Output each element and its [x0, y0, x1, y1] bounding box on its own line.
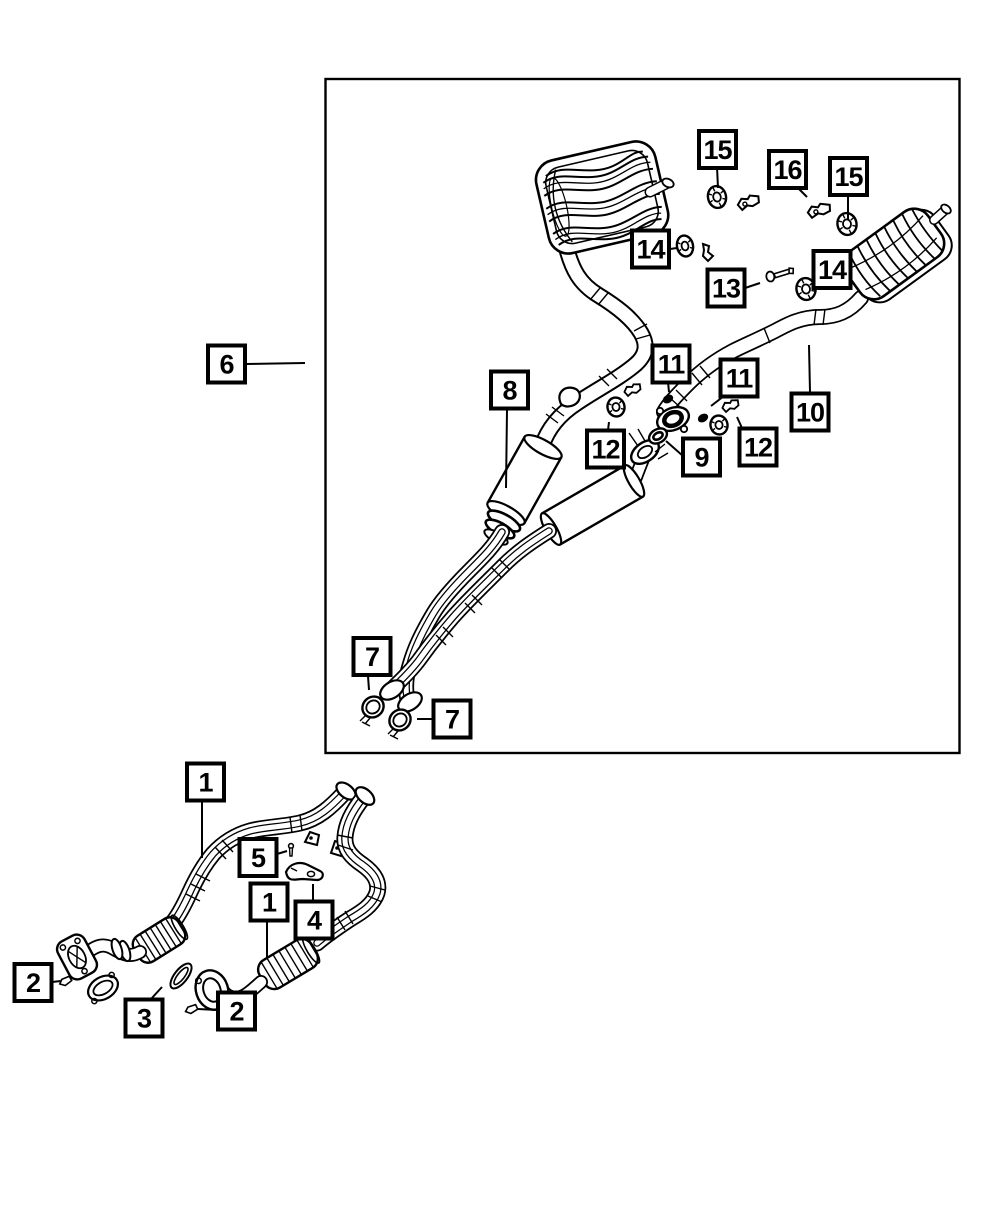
svg-text:9: 9 [694, 443, 709, 473]
svg-text:6: 6 [219, 350, 234, 380]
svg-text:13: 13 [712, 274, 741, 304]
svg-text:11: 11 [658, 350, 686, 380]
svg-text:1: 1 [262, 888, 277, 918]
svg-text:3: 3 [137, 1004, 152, 1034]
svg-text:11: 11 [726, 364, 754, 394]
svg-text:15: 15 [834, 162, 863, 192]
svg-text:2: 2 [26, 968, 40, 998]
svg-text:5: 5 [251, 843, 266, 873]
svg-text:7: 7 [445, 705, 459, 735]
svg-text:2: 2 [229, 997, 243, 1027]
svg-text:7: 7 [365, 642, 379, 672]
svg-text:4: 4 [307, 906, 322, 936]
svg-text:12: 12 [591, 435, 619, 465]
svg-text:10: 10 [796, 398, 824, 428]
svg-text:14: 14 [818, 255, 847, 285]
svg-text:12: 12 [744, 433, 772, 463]
svg-text:8: 8 [502, 376, 517, 406]
svg-text:1: 1 [198, 768, 213, 798]
svg-text:15: 15 [703, 135, 732, 165]
svg-text:14: 14 [636, 235, 665, 265]
svg-text:16: 16 [773, 155, 802, 185]
